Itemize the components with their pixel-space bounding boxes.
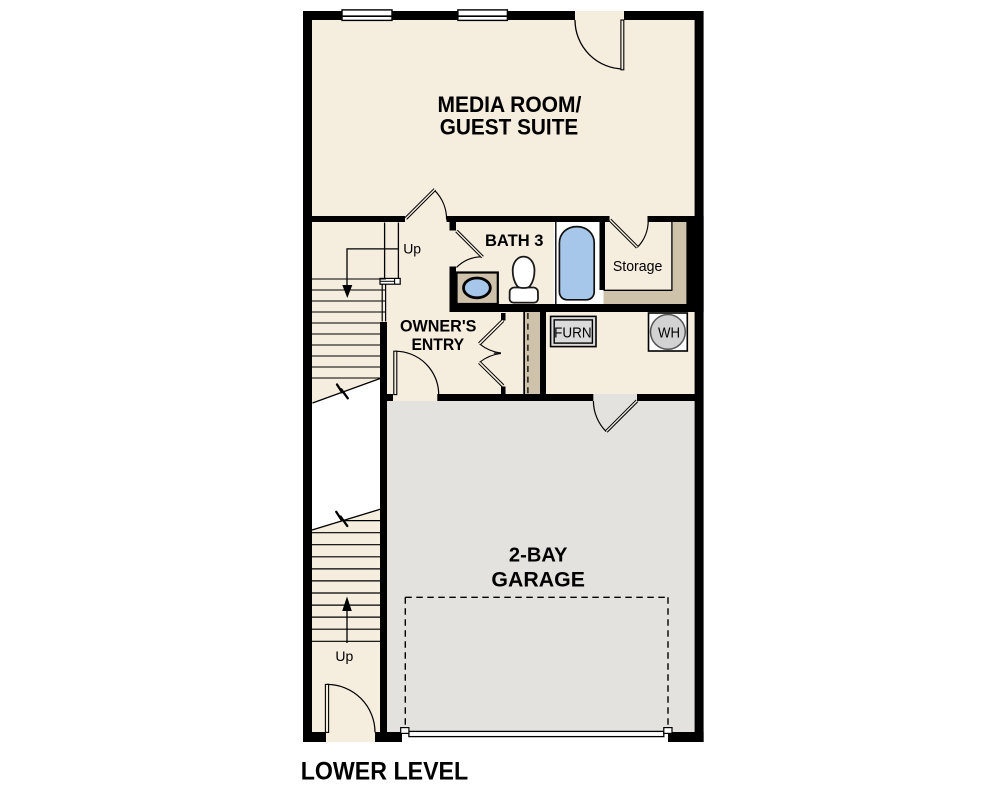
svg-text:2-BAY: 2-BAY (509, 545, 568, 567)
svg-text:ENTRY: ENTRY (411, 335, 464, 354)
svg-text:Up: Up (403, 240, 421, 256)
svg-text:GUEST SUITE: GUEST SUITE (440, 114, 579, 139)
svg-text:LOWER LEVEL: LOWER LEVEL (301, 758, 469, 786)
svg-text:WH: WH (658, 324, 680, 341)
svg-text:BATH 3: BATH 3 (485, 231, 543, 250)
svg-text:Storage: Storage (613, 258, 663, 275)
svg-text:OWNER'S: OWNER'S (400, 317, 477, 336)
svg-text:MEDIA ROOM/: MEDIA ROOM/ (438, 92, 582, 117)
svg-text:GARAGE: GARAGE (491, 569, 585, 592)
svg-text:FURN: FURN (554, 324, 592, 341)
svg-text:Up: Up (335, 648, 353, 664)
